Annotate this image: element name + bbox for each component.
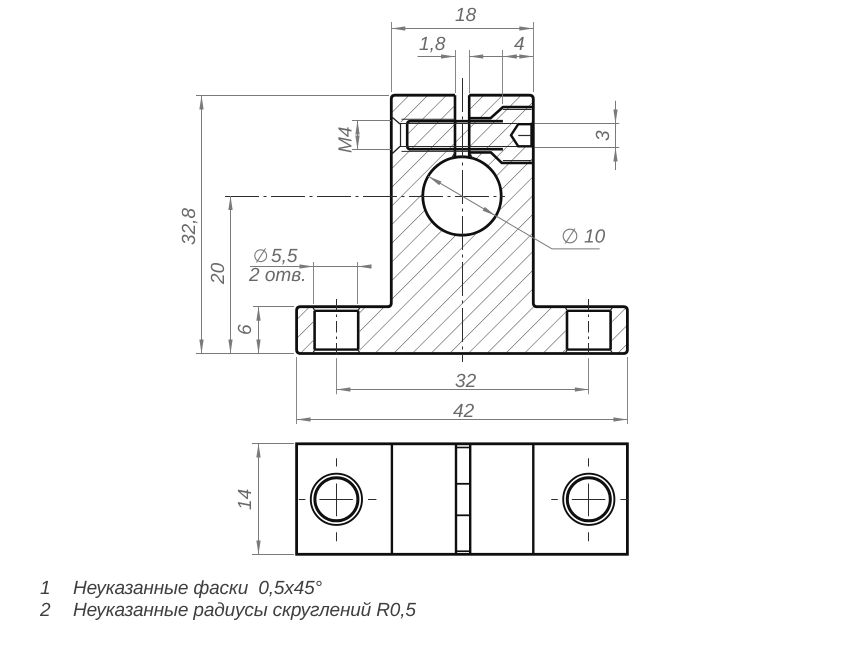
svg-text:14: 14 (235, 489, 256, 510)
svg-text:32: 32 (455, 371, 477, 392)
svg-text:32,8: 32,8 (179, 208, 200, 245)
svg-text:M4: M4 (336, 127, 357, 153)
svg-text:2: 2 (39, 600, 51, 621)
svg-text:Неуказанные фаски 0,5х45°: Неуказанные фаски 0,5х45° (73, 578, 323, 599)
svg-text:42: 42 (453, 401, 475, 422)
svg-text:18: 18 (455, 5, 477, 26)
svg-text:1,8: 1,8 (419, 34, 446, 55)
svg-text:1: 1 (40, 578, 50, 599)
svg-text:2 отв.: 2 отв. (248, 265, 306, 286)
svg-text:6: 6 (235, 324, 256, 335)
svg-text:20: 20 (208, 262, 229, 285)
svg-text:5,5: 5,5 (271, 246, 298, 267)
svg-text:Неуказанные радиусы скруглений: Неуказанные радиусы скруглений R0,5 (73, 600, 416, 621)
svg-text:3: 3 (593, 130, 614, 141)
svg-text:4: 4 (514, 34, 525, 55)
svg-text:10: 10 (584, 227, 606, 248)
